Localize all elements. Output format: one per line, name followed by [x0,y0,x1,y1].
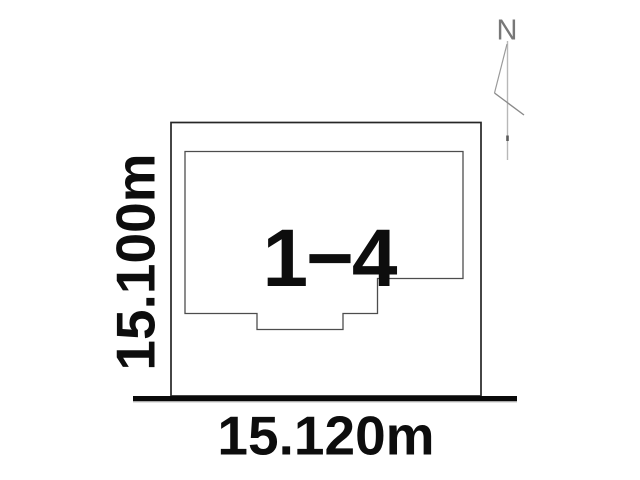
lot-number-label: 1−4 [262,218,395,300]
north-arrow-icon [495,41,525,160]
width-dimension-label: 15.120m [217,409,434,464]
height-dimension-label: 15.100m [109,153,164,370]
north-arrow-cross-stroke [495,93,525,115]
north-letter: N [497,17,518,46]
lot-diagram: 1−4 15.100m 15.120m N [0,0,640,480]
north-arrow-left-edge [495,44,508,93]
